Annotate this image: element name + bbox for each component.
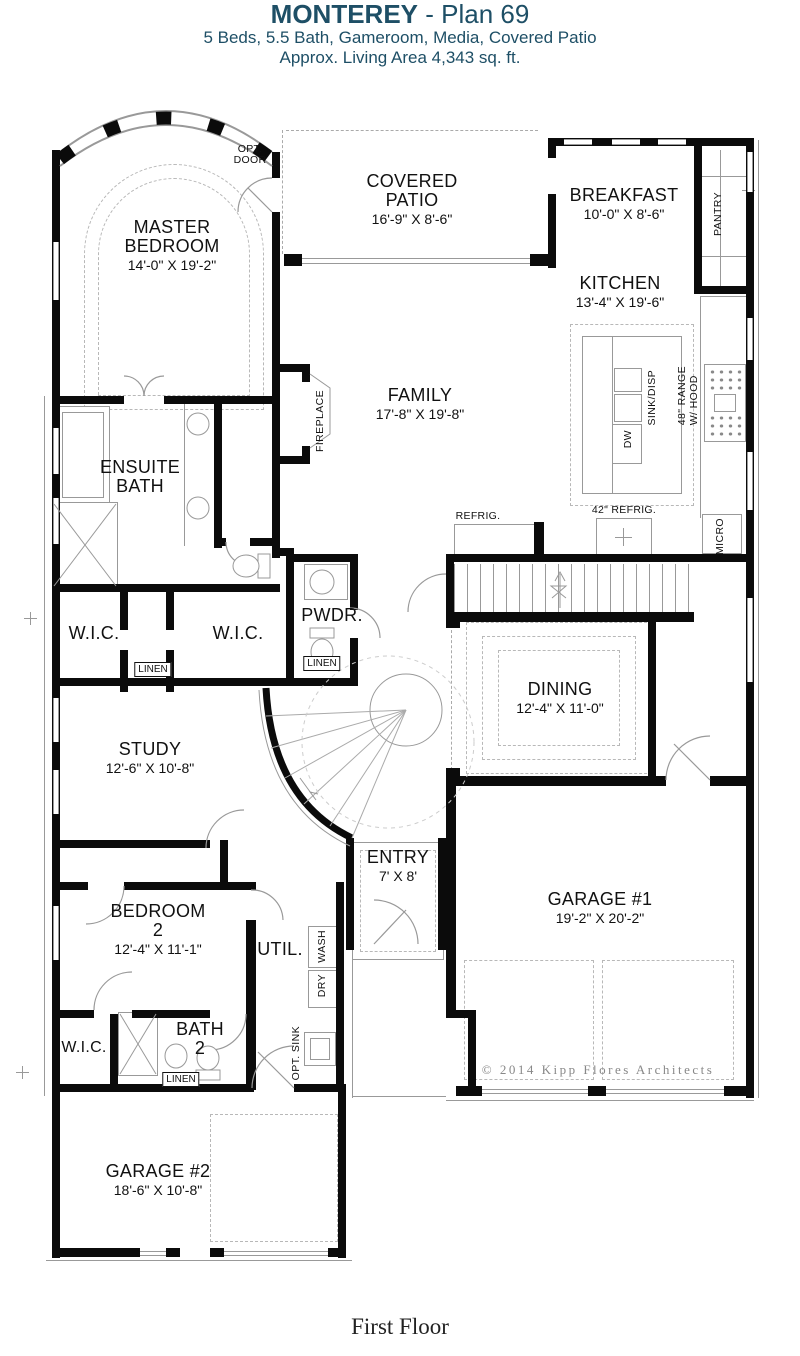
room-label-garage2: GARAGE #2 18'-6" X 10'-8" [106,1162,211,1200]
counter-edge [700,296,746,297]
wall [58,882,88,890]
wall [548,194,556,268]
window [53,770,59,814]
window [747,318,753,360]
title-block: MONTEREY - Plan 69 5 Beds, 5.5 Bath, Gam… [0,0,800,68]
fireplace-wall [302,364,310,382]
window [658,139,686,145]
room-label-entry: ENTRY 7' X 8' [367,848,429,886]
range-burners [708,368,742,392]
wall [346,838,354,950]
room-label-family: FAMILY 17'-8" X 19'-8" [376,386,464,424]
shower [52,502,118,588]
refrigerator-space [454,524,538,556]
island-divider-line [612,336,613,494]
window [747,152,753,192]
wall [246,920,256,1090]
wall [164,396,280,404]
plan-area: Approx. Living Area 4,343 sq. ft. [0,48,800,68]
room-label-wic-bed2: W.I.C. [61,1038,106,1057]
wall [446,612,694,622]
garage-door-line [482,1093,588,1094]
plan-title: MONTEREY - Plan 69 [0,0,800,28]
wall [166,1248,180,1257]
porch-edge [352,1096,446,1097]
refrig-label: REFRIG. [456,511,501,522]
room-label-garage1: GARAGE #1 19'-2" X 20'-2" [548,890,653,928]
pantry-shelf-line [702,256,746,257]
wall [52,678,288,686]
micro-label: MICRO [714,518,726,555]
wall [120,584,128,630]
wall [214,396,222,548]
room-label-bath2: BATH 2 [176,1020,224,1058]
patio-roof-dashed [286,130,538,131]
survey-cross [30,612,31,625]
patio-threshold-line [300,263,532,264]
wall [456,1086,482,1096]
island-sink-bowl [614,368,642,392]
window [53,242,59,300]
garage-door-line [482,1089,588,1090]
room-label-util: UTIL. [257,940,303,959]
exterior-line [446,1100,754,1101]
wall [338,1084,346,1258]
wash-label: WASH [316,930,328,963]
garage-door-line [606,1089,724,1090]
linen-label: LINEN [303,656,340,671]
column [446,616,460,628]
wall [468,1014,476,1090]
dw-label: DW [622,430,634,448]
vanity-edge [184,398,185,546]
wall [350,554,358,610]
opt-door-label: OPT. DOOR [234,144,267,166]
garage-door-line [606,1093,724,1094]
wall [648,620,656,782]
window [747,598,753,682]
wall [214,538,226,546]
wall [588,1086,606,1096]
wall [52,1248,140,1257]
patio-threshold-line [300,258,532,259]
wall [438,838,446,950]
bathtub-inner [62,412,104,498]
plan-name: MONTEREY [271,0,418,29]
garage-door-line [140,1255,166,1256]
counter-edge [700,296,701,518]
exterior-line [44,396,45,1096]
survey-cross [22,1066,23,1079]
shower [118,1012,158,1076]
room-label-master: MASTER BEDROOM 14'-0" X 19'-2" [124,218,219,275]
room-label-breakfast: BREAKFAST 10'-0" X 8'-6" [570,186,679,224]
room-label-dining: DINING 12'-4" X 11'-0" [516,680,603,718]
wall [286,554,358,562]
column [446,768,460,780]
dining-open-edge [451,630,452,770]
wall [694,146,702,294]
porch-edge [352,950,353,1098]
room-label-wic-left: W.I.C. [69,624,120,643]
fireplace-label: FIREPLACE [314,390,326,452]
island-sink-bowl [614,394,642,422]
wall [446,776,666,786]
wall [694,286,752,294]
room-label-wic-right: W.I.C. [213,624,264,643]
window [53,428,59,474]
room-label-study: STUDY 12'-6" X 10'-8" [106,740,194,778]
garage-door-line [224,1255,328,1256]
wall [272,268,280,558]
wall [52,1084,254,1092]
range-center [714,394,736,412]
garage-door-line [224,1251,328,1252]
garage-door-line [140,1251,166,1252]
wall [220,840,228,886]
wall [336,882,344,1090]
wall [328,1248,346,1257]
wall [246,882,256,890]
patio-roof-dashed-left [282,130,283,254]
optional-sink-bowl [310,1038,330,1060]
pantry-shelf-line [702,176,746,177]
wall [52,396,124,404]
refrig42-label: 42" REFRIG. [592,505,656,516]
exterior-line [46,1260,352,1261]
plan-number: - Plan 69 [418,0,529,29]
plan-subtitle: 5 Beds, 5.5 Bath, Gameroom, Media, Cover… [0,28,800,48]
fireplace-wall [302,446,310,464]
main-stairs [454,564,690,612]
copyright: © 2014 Kipp Flores Architects [482,1062,715,1078]
room-label-kitchen: KITCHEN 13'-4" X 19'-6" [576,274,664,312]
linen-label: LINEN [162,1072,199,1087]
wall [166,584,174,630]
window [564,139,592,145]
pantry-label: PANTRY [712,192,724,236]
floor-plan-sheet: MONTEREY - Plan 69 5 Beds, 5.5 Bath, Gam… [0,0,800,1356]
exterior-line [758,140,759,1098]
range-burners [708,414,742,438]
wall [58,840,210,848]
room-label-patio: COVERED PATIO 16'-9" X 8'-6" [366,172,457,229]
opt-sink-label: OPT. SINK [290,1026,302,1080]
wall [446,554,754,562]
wall [710,776,754,786]
wall [58,1010,94,1018]
window [747,452,753,510]
master-ceiling-outline-inner [98,178,250,396]
powder-vanity [304,564,348,600]
wall [272,212,280,270]
window [612,139,640,145]
sink-disp-label: SINK/DISP [646,370,658,426]
patio-post [284,254,302,266]
floor-label: First Floor [0,1314,800,1340]
wall [132,1010,210,1018]
patio-post [530,254,548,266]
wall [534,522,544,562]
room-label-pwdr: PWDR. [301,606,363,625]
window [53,906,59,960]
wall [272,152,280,178]
wall [210,1248,224,1257]
wall [724,1086,750,1096]
wall [694,138,754,146]
wall [110,1014,118,1086]
room-label-bedroom2: BEDROOM 2 12'-4" X 11'-1" [110,902,205,959]
car-space [210,1114,338,1242]
wall [124,882,248,890]
dry-label: DRY [316,974,328,997]
window [53,498,59,544]
range-label: 48" RANGE W/ HOOD [676,366,700,425]
refrigerator-mark [615,537,632,538]
wall [286,554,294,686]
linen-label: LINEN [134,662,171,677]
wall [286,678,358,686]
room-label-ensuite: ENSUITE BATH [100,458,180,496]
window [53,698,59,742]
wall [250,538,280,546]
wall [446,786,456,1016]
